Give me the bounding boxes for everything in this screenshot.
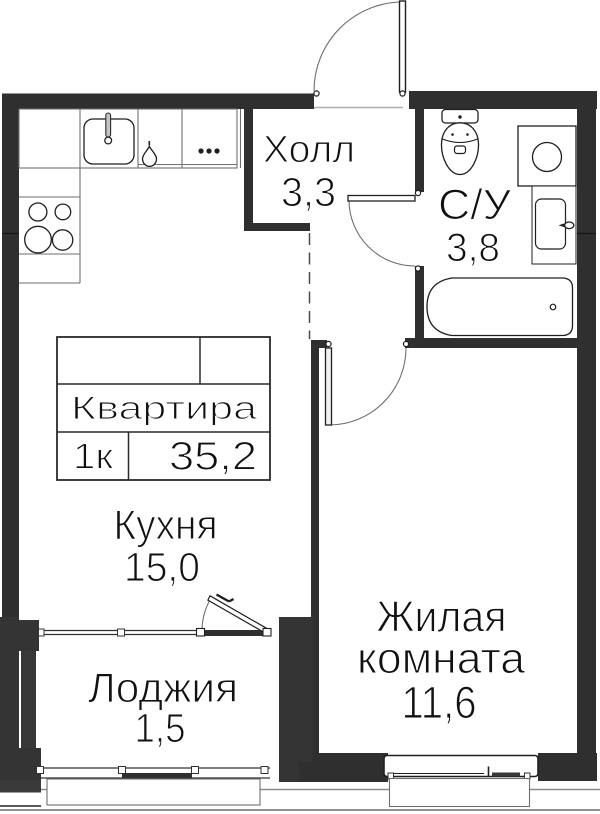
svg-text:Квартира: Квартира <box>71 390 257 426</box>
svg-text:35,2: 35,2 <box>169 435 257 479</box>
svg-text:комната: комната <box>357 634 526 683</box>
svg-text:Лоджия: Лоджия <box>88 664 238 711</box>
svg-text:15,0: 15,0 <box>124 544 200 590</box>
svg-text:Холл: Холл <box>263 129 355 171</box>
svg-text:1,5: 1,5 <box>135 705 186 751</box>
svg-text:3,3: 3,3 <box>281 169 336 215</box>
svg-text:С/У: С/У <box>438 181 512 229</box>
svg-text:1к: 1к <box>73 436 113 477</box>
svg-text:Кухня: Кухня <box>114 501 218 548</box>
svg-text:3,8: 3,8 <box>446 226 500 270</box>
svg-text:11,6: 11,6 <box>402 677 477 728</box>
